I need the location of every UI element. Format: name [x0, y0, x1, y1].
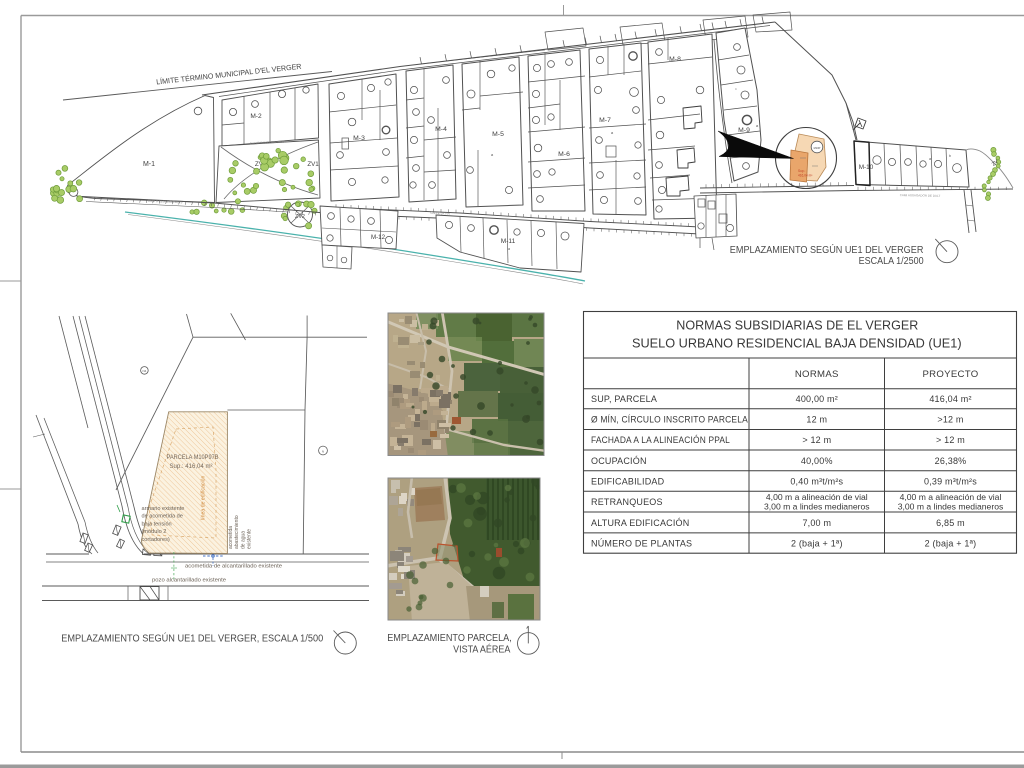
svg-text:>12 m: >12 m — [937, 415, 963, 425]
svg-text:26,38%: 26,38% — [935, 456, 967, 466]
svg-text:EMPLAZAMIENTO PARCELA,: EMPLAZAMIENTO PARCELA, — [387, 633, 512, 644]
svg-text:SUELO URBANO RESIDENCIAL BAJA: SUELO URBANO RESIDENCIAL BAJA DENSIDAD (… — [632, 336, 962, 351]
svg-text:EMPLAZAMIENTO SEGÚN UE1 DEL V: EMPLAZAMIENTO SEGÚN UE1 DEL VERGER — [730, 245, 924, 256]
svg-text:400,00 m²: 400,00 m² — [796, 394, 838, 404]
svg-text:(módulo 2: (módulo 2 — [142, 529, 167, 535]
svg-text:PROYECTO: PROYECTO — [922, 369, 978, 380]
svg-text:OCUPACIÓN: OCUPACIÓN — [591, 456, 647, 466]
svg-text:FACHADA A LA ALINEACIÓN PPAL: FACHADA A LA ALINEACIÓN PPAL — [591, 435, 730, 445]
svg-text:CAMI ASSAGADOR DE DALT: CAMI ASSAGADOR DE DALT — [900, 193, 941, 198]
svg-text:0,39 m³t/m²s: 0,39 m³t/m²s — [924, 476, 977, 486]
svg-text:M-11: M-11 — [501, 238, 516, 245]
svg-text:2 (baja + 1ª): 2 (baja + 1ª) — [925, 538, 977, 548]
svg-text:M-5: M-5 — [492, 131, 504, 138]
svg-text:416,04 m²: 416,04 m² — [798, 174, 812, 178]
svg-text:M-4: M-4 — [435, 126, 447, 133]
svg-text:3,00 m a lindes medianeros: 3,00 m a lindes medianeros — [898, 501, 1004, 511]
svg-text:M-2: M-2 — [250, 113, 262, 120]
svg-text:416,04 m²: 416,04 m² — [929, 394, 971, 404]
svg-text:SUP, PARCELA: SUP, PARCELA — [591, 394, 657, 404]
svg-text:7,00 m: 7,00 m — [802, 518, 831, 528]
svg-text:N: N — [322, 449, 324, 453]
svg-text:abastecimiento: abastecimiento — [234, 515, 240, 549]
svg-text:40,00%: 40,00% — [801, 456, 833, 466]
svg-text:2 (baja + 1ª): 2 (baja + 1ª) — [791, 538, 843, 548]
svg-text:M-8: M-8 — [669, 56, 681, 63]
svg-text:a: a — [508, 247, 510, 251]
svg-text:cortadores): cortadores) — [142, 537, 170, 543]
svg-text:4,00 m a alineación de vial: 4,00 m a alineación de vial — [900, 492, 1002, 502]
svg-text:RETRANQUEOS: RETRANQUEOS — [591, 497, 663, 507]
svg-text:Sup.: 416,04 m²: Sup.: 416,04 m² — [170, 463, 213, 470]
svg-text:a: a — [929, 157, 931, 161]
svg-text:pozo alcantarillado existente: pozo alcantarillado existente — [152, 578, 226, 584]
svg-text:NORMAS: NORMAS — [795, 369, 839, 380]
svg-text:4,00 m a alineación de vial: 4,00 m a alineación de vial — [766, 492, 868, 502]
svg-text:ZV2: ZV2 — [295, 214, 305, 220]
svg-text:M10P: M10P — [814, 146, 821, 150]
svg-text:> 12 m: > 12 m — [936, 435, 965, 445]
svg-text:M-12: M-12 — [371, 234, 386, 241]
svg-text:Ø MÍN, CÍRCULO INSCRITO PARCE: Ø MÍN, CÍRCULO INSCRITO PARCELA — [591, 415, 748, 425]
svg-text:M-3: M-3 — [353, 135, 365, 142]
svg-text:12 m: 12 m — [806, 415, 827, 425]
svg-text:NORMAS SUBSIDIARIAS DE EL VERG: NORMAS SUBSIDIARIAS DE EL VERGER — [676, 318, 918, 333]
svg-text:armario existente: armario existente — [142, 506, 185, 512]
svg-text:b: b — [949, 154, 951, 158]
svg-text:M-7: M-7 — [599, 117, 611, 124]
svg-text:de acometida de: de acometida de — [142, 514, 183, 520]
svg-text:M-6: M-6 — [558, 151, 570, 158]
svg-text:de agua: de agua — [240, 531, 246, 549]
svg-text:baja tensión: baja tensión — [142, 521, 172, 527]
svg-text:acometida: acometida — [228, 526, 234, 549]
svg-text:> 12 m: > 12 m — [802, 435, 831, 445]
svg-text:EMPLAZAMIENTO SEGÚN UE1 DEL V: EMPLAZAMIENTO SEGÚN UE1 DEL VERGER, ESCA… — [61, 634, 324, 645]
svg-text:línea de edificación: línea de edificación — [201, 475, 207, 520]
svg-text:0,40 m³t/m²s: 0,40 m³t/m²s — [790, 476, 843, 486]
svg-text:ESCALA 1/2500: ESCALA 1/2500 — [859, 256, 925, 267]
svg-text:EDIFICABILIDAD: EDIFICABILIDAD — [591, 476, 665, 486]
svg-text:M-9: M-9 — [738, 127, 750, 134]
svg-text:acometida de alcantarillado ex: acometida de alcantarillado existente — [185, 564, 282, 570]
svg-text:PARCELA M10P97B: PARCELA M10P97B — [167, 454, 219, 461]
svg-text:NÚMERO DE PLANTAS: NÚMERO DE PLANTAS — [591, 538, 692, 548]
svg-text:existente: existente — [247, 529, 253, 549]
svg-text:ALTURA EDIFICACIÓN: ALTURA EDIFICACIÓN — [591, 518, 689, 528]
svg-text:M-10: M-10 — [859, 164, 874, 171]
svg-text:Sup.:: Sup.: — [798, 169, 806, 173]
svg-text:M-1: M-1 — [143, 161, 155, 168]
svg-text:VISTA AÉREA: VISTA AÉREA — [453, 645, 511, 656]
svg-text:N4: N4 — [142, 369, 146, 373]
svg-text:CAMI D ELS LLIDONERS: CAMI D ELS LLIDONERS — [148, 199, 183, 205]
svg-text:ZV1: ZV1 — [307, 161, 319, 168]
svg-text:6,85 m: 6,85 m — [936, 518, 965, 528]
svg-text:3,00 m a lindes medianeros: 3,00 m a lindes medianeros — [764, 501, 870, 511]
